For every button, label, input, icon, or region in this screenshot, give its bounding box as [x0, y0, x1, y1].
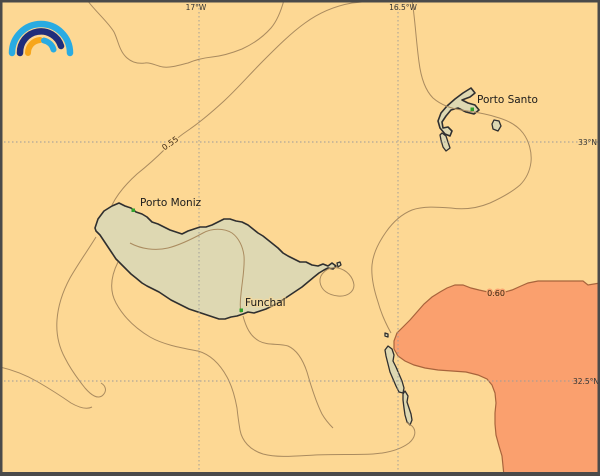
contour-label-0-60: 0.60	[487, 289, 505, 298]
lon-label-16-5w: 16.5°W	[389, 3, 417, 12]
lat-label-33n: 33°N	[578, 138, 597, 147]
funchal-marker	[240, 309, 244, 313]
porto-santo-marker	[471, 108, 475, 112]
desertas-islet-north	[385, 333, 388, 337]
porto-santo-label: Porto Santo	[477, 94, 538, 106]
weather-probability-map: 17°W 16.5°W 33°N 32.5°N 0.55 0.60 Porto …	[0, 0, 600, 476]
porto-santo-islet-east	[492, 120, 501, 131]
lat-label-32-5n: 32.5°N	[573, 377, 599, 386]
porto-moniz-label: Porto Moniz	[140, 197, 202, 209]
map-canvas: 17°W 16.5°W 33°N 32.5°N 0.55 0.60 Porto …	[0, 0, 600, 476]
porto-moniz-marker	[132, 209, 136, 213]
funchal-label: Funchal	[245, 297, 286, 309]
lon-label-17w: 17°W	[186, 3, 207, 12]
